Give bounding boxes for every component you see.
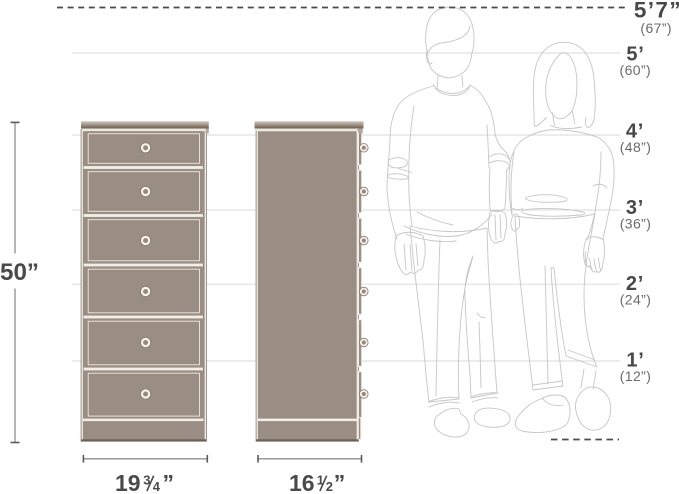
svg-text:(67”): (67”) xyxy=(640,20,672,36)
svg-text:19: 19 xyxy=(115,470,141,494)
svg-text:(24”): (24”) xyxy=(620,291,652,307)
svg-text:”: ” xyxy=(163,470,175,494)
svg-text:2: 2 xyxy=(326,479,333,494)
svg-text:50”: 50” xyxy=(0,259,39,286)
svg-text:5’7”: 5’7” xyxy=(634,0,679,23)
svg-text:16: 16 xyxy=(289,470,315,494)
svg-text:(12”): (12”) xyxy=(620,368,652,384)
svg-text:(48”): (48”) xyxy=(620,139,652,155)
svg-text:(60”): (60”) xyxy=(620,62,652,78)
svg-text:”: ” xyxy=(334,470,346,494)
svg-text:(36”): (36”) xyxy=(620,215,652,231)
svg-text:4: 4 xyxy=(153,479,161,494)
